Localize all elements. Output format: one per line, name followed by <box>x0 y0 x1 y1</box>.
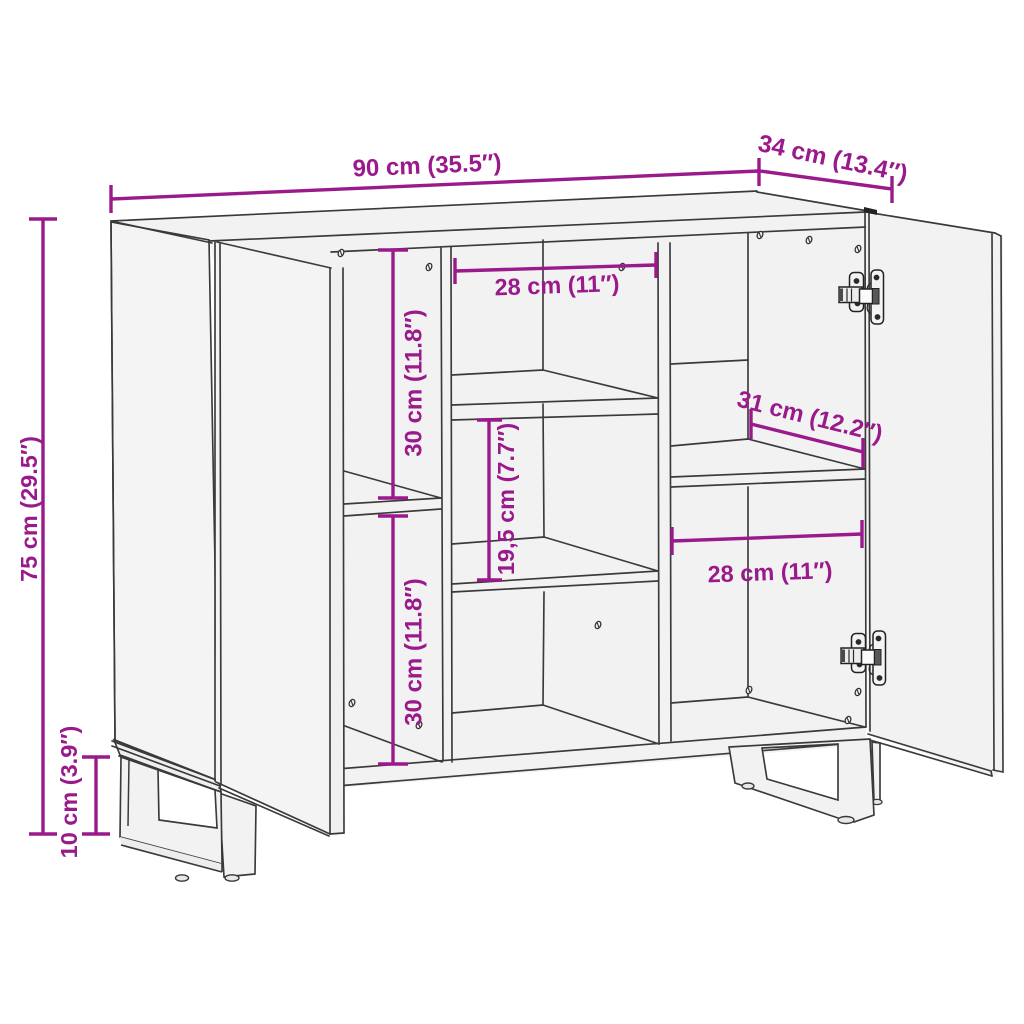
svg-text:75 cm (29.5″): 75 cm (29.5″) <box>16 436 42 582</box>
svg-text:28 cm (11″): 28 cm (11″) <box>494 270 620 300</box>
svg-text:19,5 cm (7.7″): 19,5 cm (7.7″) <box>493 423 519 575</box>
svg-text:28 cm (11″): 28 cm (11″) <box>707 557 833 587</box>
svg-text:10 cm (3.9″): 10 cm (3.9″) <box>56 726 82 859</box>
svg-text:30 cm (11.8″): 30 cm (11.8″) <box>400 309 427 457</box>
svg-text:30 cm (11.8″): 30 cm (11.8″) <box>400 578 427 726</box>
